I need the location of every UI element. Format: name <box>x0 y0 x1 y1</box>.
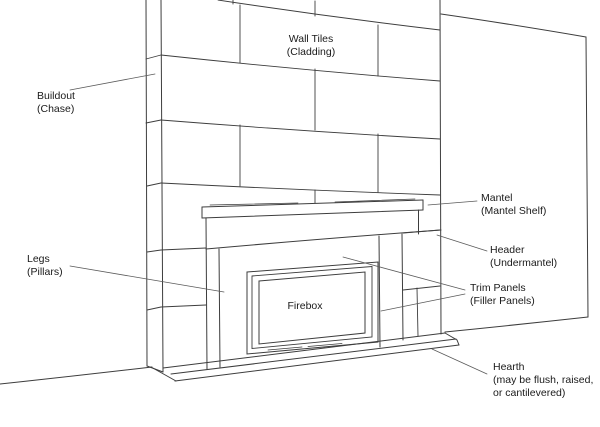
left-leg-inner-edge <box>219 249 220 367</box>
chase-right-corner-edge <box>440 0 441 334</box>
right-leg-inner-edge <box>379 236 380 347</box>
leader-lines <box>70 74 487 374</box>
hearth-front-top-edge <box>171 339 456 374</box>
right-leg-outer-edge <box>402 234 403 340</box>
tile-side-tick <box>147 250 161 252</box>
label-legs-line1: Legs <box>27 253 63 266</box>
leader-hearth <box>432 349 487 374</box>
chase-back-edge <box>146 0 147 366</box>
label-firebox-line1: Firebox <box>272 300 338 313</box>
label-legs: Legs (Pillars) <box>27 253 63 279</box>
label-hearth: Hearth (may be flush, raised, or cantile… <box>493 361 593 400</box>
leader-mantel <box>428 201 477 205</box>
tile-joint-line <box>161 248 206 250</box>
label-trim-panels: Trim Panels (Filler Panels) <box>470 282 535 308</box>
floor-line <box>0 367 152 384</box>
label-buildout-line2: (Chase) <box>37 103 75 116</box>
fireplace-anatomy-diagram: Wall Tiles (Cladding) Buildout (Chase) M… <box>0 0 600 427</box>
label-hearth-line2: (may be flush, raised, <box>493 374 593 387</box>
tile-course-line <box>161 120 440 139</box>
hearth-back-edge <box>163 333 445 368</box>
label-mantel-line2: (Mantel Shelf) <box>481 205 546 218</box>
leader-buildout <box>70 74 155 90</box>
left-leg-outer-edge <box>206 218 207 369</box>
tile-course-line <box>218 0 440 30</box>
tile-course-line <box>161 183 440 195</box>
mantel-top-edge <box>202 200 423 207</box>
header-bottom-edge <box>206 230 441 249</box>
label-wall-tiles-line2: (Cladding) <box>248 46 374 59</box>
tile-side-tick <box>146 120 161 123</box>
tile-joint-line <box>161 305 206 307</box>
label-header: Header (Undermantel) <box>490 244 557 270</box>
label-wall-tiles: Wall Tiles (Cladding) <box>248 33 374 59</box>
tile-joint-line <box>403 286 440 290</box>
chase-front-corner-edge <box>161 0 163 372</box>
label-mantel: Mantel (Mantel Shelf) <box>481 192 546 218</box>
tile-side-tick <box>147 307 161 310</box>
label-firebox: Firebox <box>272 300 338 313</box>
leader-header <box>437 235 487 251</box>
label-hearth-line1: Hearth <box>493 361 593 374</box>
label-buildout-line1: Buildout <box>37 90 75 103</box>
label-mantel-line1: Mantel <box>481 192 546 205</box>
label-buildout: Buildout (Chase) <box>37 90 75 116</box>
mantel-shelf <box>202 199 423 218</box>
wall-right-edge <box>586 37 588 317</box>
header-panel <box>206 210 441 249</box>
hearth-slab <box>151 333 459 381</box>
leader-trim-lower <box>381 294 465 311</box>
label-legs-line2: (Pillars) <box>27 266 63 279</box>
wall-bottom-edge <box>445 317 588 332</box>
leader-trim-upper <box>343 257 465 290</box>
label-trim-panels-line1: Trim Panels <box>470 282 535 295</box>
mantel-bottom-edge <box>202 210 423 218</box>
label-header-line2: (Undermantel) <box>490 257 557 270</box>
tile-joint-line <box>417 288 418 336</box>
wall-top-edge <box>441 14 586 37</box>
hearth-front-bottom-edge <box>175 345 459 381</box>
label-trim-panels-line2: (Filler Panels) <box>470 295 535 308</box>
label-header-line1: Header <box>490 244 557 257</box>
tile-side-tick <box>146 55 161 59</box>
label-wall-tiles-line1: Wall Tiles <box>248 33 374 46</box>
label-hearth-line3: or cantilevered) <box>493 387 593 400</box>
tile-side-tick <box>147 183 161 186</box>
